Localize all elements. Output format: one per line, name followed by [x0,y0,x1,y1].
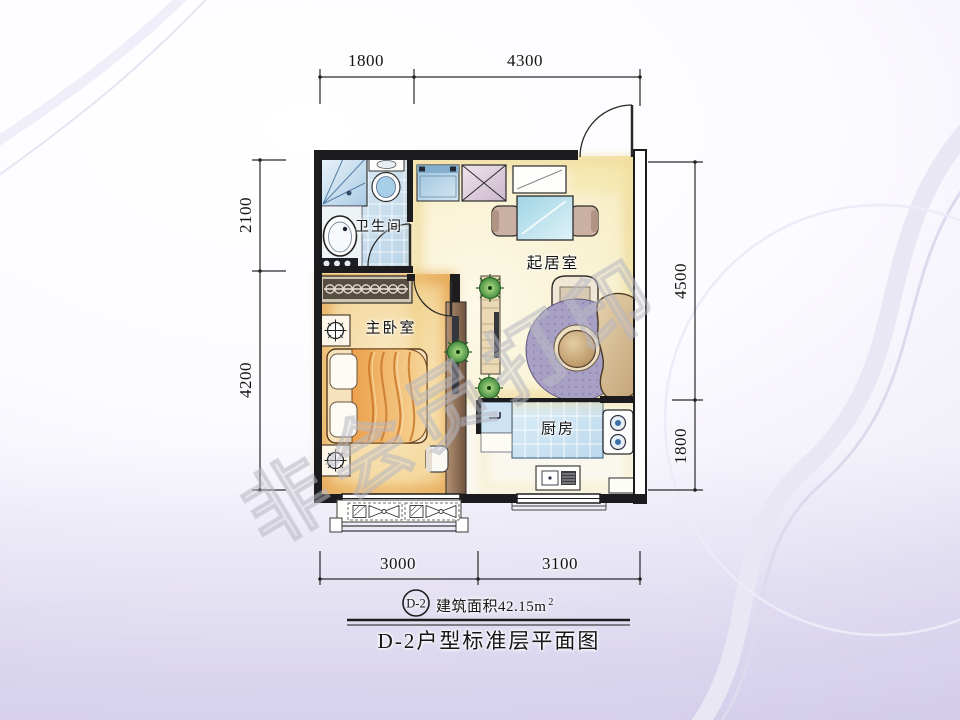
bed [327,349,427,443]
desk-chair [426,446,448,472]
area-text: 建筑面积42.15m2 [436,595,554,616]
dim-bottom-left: 3000 [380,554,416,574]
wardrobe [320,276,412,303]
slide: 非会员打印 1800 4300 2100 4200 4500 1800 3000… [0,0,960,720]
area-superscript: 2 [548,597,554,608]
room-label-living: 起居室 [527,251,580,273]
room-label-bathroom: 卫生间 [355,216,403,236]
drawing-title: D-2户型标准层平面图 [378,625,601,655]
plant [476,274,504,302]
dim-left-bottom: 4200 [236,362,256,398]
fridge-box [609,478,634,493]
dim-bottom-right: 3100 [542,554,578,574]
unit-code: D-2 [406,597,425,612]
dim-left-top: 2100 [236,197,256,233]
nightstand-lamp [321,315,350,346]
shower [321,157,367,206]
coffee-table [559,331,596,368]
entry-door [580,105,632,157]
plant [475,374,503,402]
kitchen-counter-appliance [536,466,580,490]
area-label: 建筑面积42.15m [436,599,546,615]
kitchen-window-sill [512,503,606,510]
washing-machine [417,165,459,201]
room-label-bedroom: 主卧室 [365,317,416,338]
duct-shaft [462,165,506,201]
dim-right-bottom: 1800 [671,428,691,464]
dim-top-right: 4300 [507,51,543,71]
partition-cabinet [446,302,466,494]
ac-unit [348,503,402,520]
entry-mat [513,166,566,193]
stove [603,410,633,454]
room-label-kitchen: 厨房 [541,418,575,439]
ac-unit [405,503,459,520]
kitchen-sink [481,402,512,452]
nightstand-lamp [321,445,350,476]
plant [444,338,472,366]
dim-right-top: 4500 [671,263,691,299]
dim-top-left: 1800 [348,51,384,71]
